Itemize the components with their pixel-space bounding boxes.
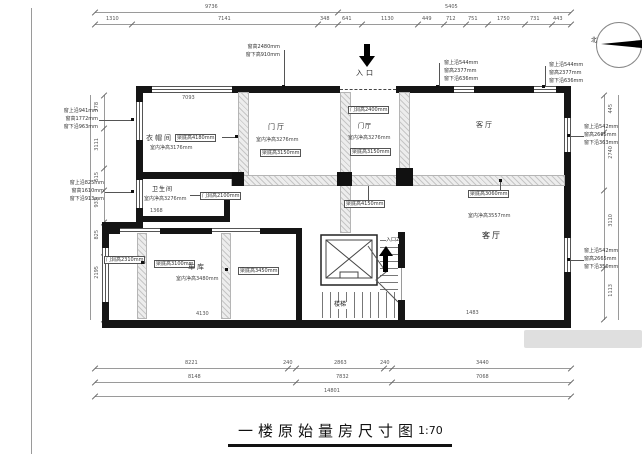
wall	[296, 228, 302, 320]
room-living-top-name: 客厅	[476, 122, 494, 130]
wall	[564, 152, 571, 238]
dim-top2-4: 1130	[381, 17, 394, 22]
dim-top2-0: 1310	[106, 17, 119, 22]
entry-arrow-stem	[364, 44, 370, 56]
dim-left-5: 2195	[95, 266, 100, 279]
dim-line-top2	[95, 24, 571, 25]
corridor-beam-label: 梁底高4150mm	[344, 200, 385, 208]
window	[152, 86, 232, 93]
dim-right-2: 3110	[609, 214, 614, 227]
leader	[500, 181, 501, 190]
dim-inner-3: 1483	[466, 311, 479, 316]
wall	[564, 86, 571, 118]
sheet-edge-line	[31, 8, 32, 454]
dim-bottom2-1: 7832	[336, 375, 349, 380]
callout-right-upper: 窗上沿542mm窗高2665mm窗下沿363mm	[584, 124, 618, 147]
drawing-title: 一楼原始量房尺寸图	[238, 420, 418, 441]
dim-top2-1: 7141	[218, 17, 231, 22]
callout-right-lower: 窗上沿542mm窗高2665mm窗下沿350mm	[584, 248, 618, 271]
dim-line-bottom3	[95, 396, 571, 397]
leader-dot	[225, 268, 228, 271]
dim-top1-1: 5405	[445, 5, 458, 10]
leader	[190, 195, 200, 196]
stairs-label: 楼梯	[333, 302, 347, 309]
tick	[568, 393, 574, 399]
dim-top2-8: 1750	[497, 17, 510, 22]
tick	[568, 9, 574, 15]
dim-top1-0: 9736	[205, 5, 218, 10]
dim-inner-0: 7093	[182, 96, 195, 101]
room-foyer1-height: 室内净高3276mm	[256, 138, 298, 144]
room-foyer1-name: 门厅	[268, 124, 286, 132]
entry-opening-dashed	[340, 89, 396, 90]
beam-vertical	[222, 234, 230, 318]
compass-needle-icon	[601, 40, 642, 48]
window	[564, 238, 571, 272]
opening-line	[401, 268, 402, 300]
callout-left-upper: 窗上沿941mm窗高1772mm窗下沿963mm	[54, 108, 98, 131]
room-foyer2-beam: 梁底高3150mm	[350, 148, 391, 156]
watermark	[524, 330, 642, 348]
entry2-arrow-up-icon	[379, 246, 393, 256]
wall	[102, 320, 571, 328]
leader-dot	[542, 85, 545, 88]
entry2-label: 入口2	[386, 238, 399, 244]
dim-bottom3-0: 14801	[324, 389, 340, 394]
room-cloakroom-beam: 梁底高4180mm	[175, 134, 216, 142]
room-foyer2-door: 门洞高2400mm	[348, 106, 389, 114]
leader-dot	[235, 135, 238, 138]
room-garage-name: 车库	[188, 264, 206, 272]
wall	[474, 86, 534, 93]
tick	[568, 365, 574, 371]
garage-door-label: 门洞高2310mm	[104, 256, 145, 264]
dim-line-top1	[95, 12, 571, 13]
room-living-main-name: 客厅	[482, 232, 502, 241]
dim-top2-3: 641	[342, 17, 352, 22]
wall	[102, 228, 120, 234]
room-living-main-beam: 梁底高3060mm	[468, 190, 509, 198]
callout-left-lower: 窗上沿825mm窗高1610mm窗下沿913mm	[60, 180, 104, 203]
dim-bottom1-0: 8221	[185, 361, 198, 366]
dim-top2-9: 731	[530, 17, 540, 22]
tick	[568, 379, 574, 385]
leader-dot	[282, 85, 285, 88]
dim-bottom1-2: 2863	[334, 361, 347, 366]
dim-bottom2-2: 7068	[476, 375, 489, 380]
room-foyer2-name: 门厅	[358, 124, 372, 131]
tick	[568, 21, 574, 27]
leader	[105, 192, 133, 193]
dim-bottom2-0: 8148	[188, 375, 201, 380]
wall	[136, 216, 230, 222]
dim-bottom1-4: 3440	[476, 361, 489, 366]
dim-top2-10: 443	[553, 17, 563, 22]
leader-dot	[436, 85, 439, 88]
column	[396, 168, 413, 186]
dim-inner-1: 1368	[150, 209, 163, 214]
room-foyer2-height: 室内净高3276mm	[348, 136, 390, 142]
window	[136, 102, 143, 140]
drawing-scale: 1:70	[418, 424, 443, 437]
leader	[439, 63, 440, 86]
dim-left-4: 825	[95, 230, 100, 240]
leader-dot	[131, 190, 134, 193]
tick	[601, 316, 607, 322]
leader-dot	[499, 179, 502, 182]
compass-north-label: 北	[591, 38, 597, 45]
entry2-arrow-stem	[383, 256, 388, 272]
dim-bottom1-3: 240	[380, 361, 390, 366]
room-bathroom-name: 卫生间	[152, 187, 173, 194]
room-living-main-height: 室内净高3557mm	[468, 214, 510, 220]
room-cloakroom: 衣帽间 梁底高4180mm	[146, 133, 216, 143]
column	[232, 172, 244, 186]
room-cloakroom-height: 室内净高3176mm	[150, 146, 192, 152]
wall	[396, 86, 454, 93]
dim-line-bottom2	[95, 382, 571, 383]
leader	[368, 186, 369, 200]
leader	[99, 120, 133, 121]
dim-right-0: 445	[609, 104, 614, 114]
garage-beam2-label: 梁底高3450mm	[238, 267, 279, 275]
leader	[284, 50, 285, 86]
dim-top2-7: 751	[468, 17, 478, 22]
window	[454, 86, 474, 93]
dim-bottom1-1: 240	[283, 361, 293, 366]
leader-dot	[141, 261, 144, 264]
room-cloakroom-name: 衣帽间	[146, 133, 173, 143]
floorplan-sheet: 9736 5405 1310 7141 348 641 1130 449 712…	[0, 0, 644, 463]
wall	[136, 172, 232, 179]
room-bathroom-height: 室内净高3276mm	[144, 197, 186, 203]
room-garage-height: 室内净高3480mm	[176, 277, 218, 283]
window	[212, 228, 260, 234]
leader	[570, 260, 584, 261]
dim-line-bottom1	[95, 368, 571, 369]
dim-top2-6: 712	[446, 17, 456, 22]
callout-top-right: 窗上沿544mm窗高2377mm窗下沿636mm	[549, 62, 583, 85]
wall	[136, 86, 143, 102]
dim-left-1: 3111	[95, 138, 100, 151]
entry-label: 入口	[356, 70, 376, 78]
dim-inner-2: 4130	[196, 312, 209, 317]
window	[136, 180, 143, 208]
room-bathroom-door: 门洞高2100mm	[200, 192, 241, 200]
dim-right-3: 1113	[609, 284, 614, 297]
entry-arrow-down-icon	[359, 56, 375, 67]
beam-vertical	[138, 234, 146, 318]
callout-top-mid: 窗上沿544mm窗高2377mm窗下沿636mm	[444, 60, 478, 83]
leader-dot	[131, 118, 134, 121]
column	[337, 172, 352, 186]
dim-right-1: 2740	[609, 146, 614, 159]
leader-dot	[567, 134, 570, 137]
wall	[160, 228, 212, 234]
callout-top-center: 窗高2480mm窗下高910mm	[236, 44, 280, 60]
window	[534, 86, 556, 93]
room-foyer1-beam: 梁底高3150mm	[260, 149, 301, 157]
title-underline	[228, 444, 452, 447]
dim-top2-5: 449	[422, 17, 432, 22]
beam-vertical	[400, 93, 409, 168]
wall	[102, 222, 109, 248]
leader	[570, 136, 584, 137]
wall	[232, 86, 340, 93]
beam-vertical	[239, 93, 248, 176]
leader	[545, 66, 546, 86]
wall	[564, 272, 571, 328]
leader-dot	[567, 258, 570, 261]
dim-top2-2: 348	[320, 17, 330, 22]
